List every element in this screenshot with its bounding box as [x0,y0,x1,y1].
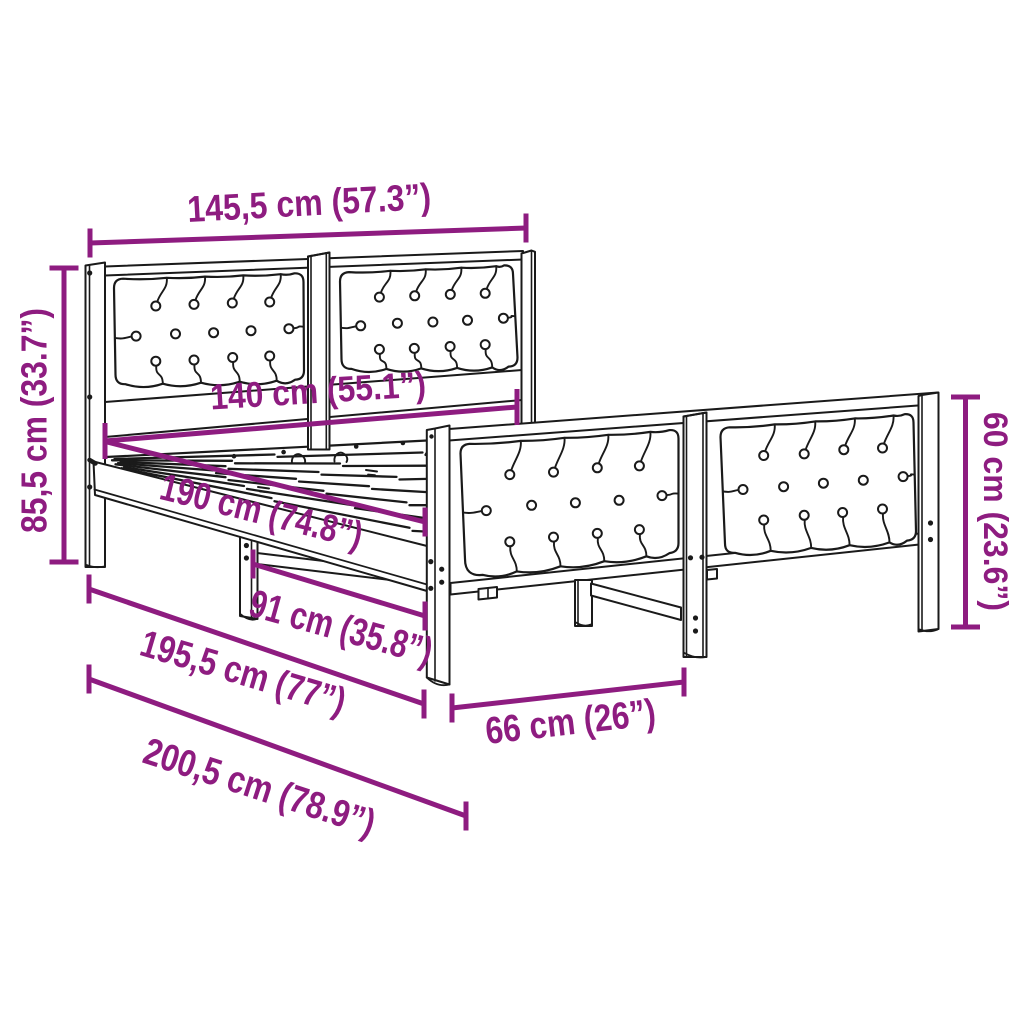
svg-text:60 cm (23.6”): 60 cm (23.6”) [976,412,1014,611]
svg-text:85,5 cm (33.7”): 85,5 cm (33.7”) [14,308,55,533]
